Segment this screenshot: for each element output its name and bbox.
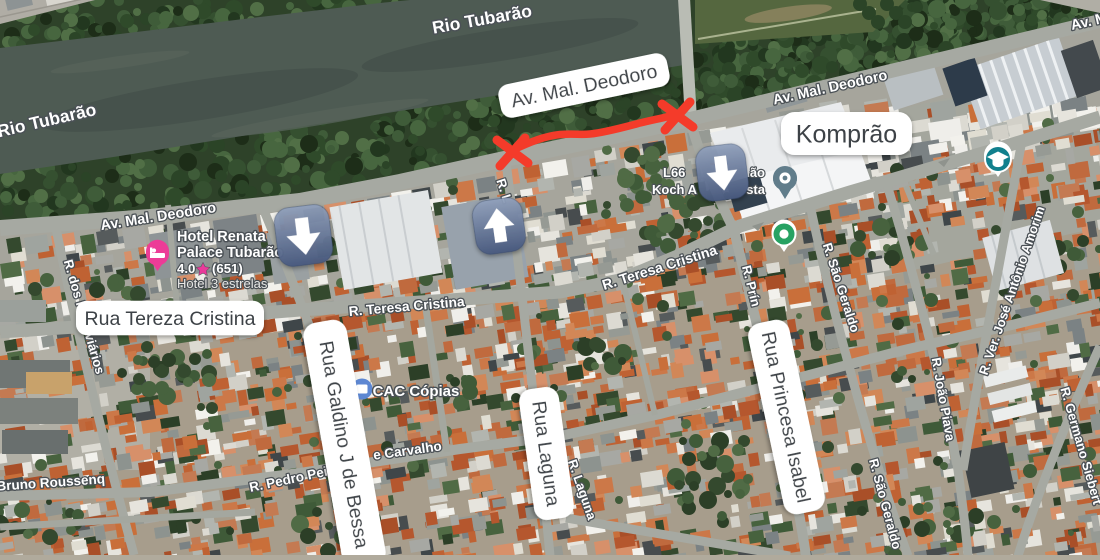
svg-text:ão: ão xyxy=(750,165,765,180)
svg-text:CAC Cópias: CAC Cópias xyxy=(373,383,460,400)
svg-text:Rua Tereza Cristina: Rua Tereza Cristina xyxy=(85,308,256,330)
svg-text:(651): (651) xyxy=(212,261,243,276)
svg-text:Koch A: Koch A xyxy=(652,182,698,197)
svg-text:Hotel 3 estrelas: Hotel 3 estrelas xyxy=(177,276,268,291)
svg-text:L66: L66 xyxy=(663,165,685,180)
svg-text:Palace Tubarão: Palace Tubarão xyxy=(177,245,283,261)
svg-text:4.0: 4.0 xyxy=(177,261,195,276)
svg-text:Komprão: Komprão xyxy=(796,120,897,148)
svg-text:Hotel Renata: Hotel Renata xyxy=(177,229,267,245)
svg-text:sta: sta xyxy=(746,182,766,197)
